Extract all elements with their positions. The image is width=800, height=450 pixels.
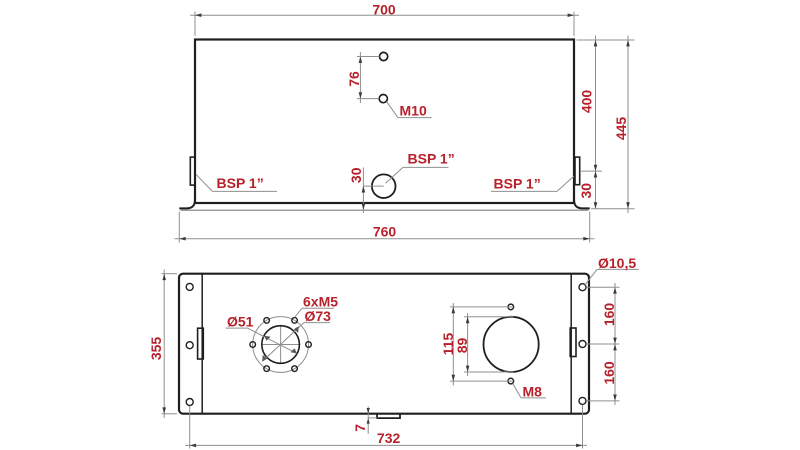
svg-text:Ø73: Ø73 <box>305 308 332 324</box>
svg-text:89: 89 <box>454 338 470 354</box>
svg-text:30: 30 <box>348 167 364 183</box>
svg-text:7: 7 <box>352 424 368 432</box>
svg-text:76: 76 <box>346 71 362 87</box>
svg-text:M8: M8 <box>523 384 543 400</box>
svg-text:160: 160 <box>601 303 617 327</box>
svg-text:160: 160 <box>601 361 617 385</box>
svg-text:445: 445 <box>613 117 629 141</box>
svg-text:700: 700 <box>372 2 396 18</box>
svg-text:732: 732 <box>377 430 401 446</box>
svg-text:BSP 1”: BSP 1” <box>217 175 264 191</box>
svg-text:30: 30 <box>578 183 594 199</box>
svg-text:400: 400 <box>579 90 595 114</box>
svg-text:BSP 1”: BSP 1” <box>408 151 455 167</box>
svg-text:355: 355 <box>148 337 164 361</box>
svg-text:760: 760 <box>373 224 397 240</box>
svg-text:Ø51: Ø51 <box>227 314 254 330</box>
svg-text:Ø10,5: Ø10,5 <box>598 255 636 271</box>
svg-text:BSP 1”: BSP 1” <box>494 176 541 192</box>
svg-text:M10: M10 <box>400 103 427 119</box>
